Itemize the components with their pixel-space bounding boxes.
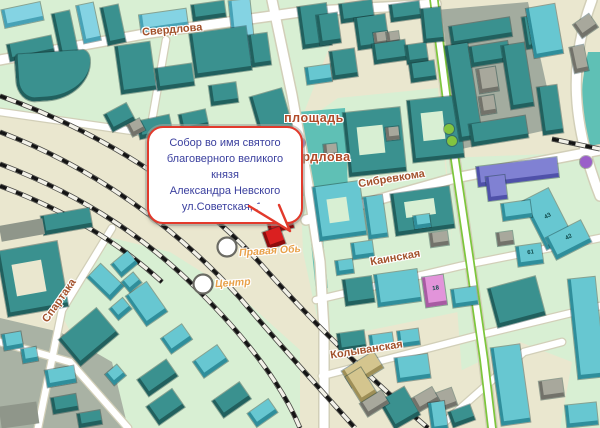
tree-dot-green xyxy=(447,136,457,146)
building xyxy=(21,347,38,363)
building xyxy=(209,82,239,106)
poi-dot-purple[interactable] xyxy=(580,156,592,168)
building: 18 xyxy=(422,275,447,308)
building xyxy=(479,95,497,115)
building xyxy=(326,197,349,224)
building xyxy=(374,269,421,307)
station-label-centr: Центр xyxy=(215,276,251,290)
callout-line: ул.Советская, 1а xyxy=(154,199,296,215)
building xyxy=(11,260,46,297)
station-circle-centr[interactable] xyxy=(194,275,213,294)
callout-line: благоверного великого князя xyxy=(154,151,296,183)
building-number: 61 xyxy=(519,243,543,262)
building xyxy=(357,125,386,156)
building xyxy=(429,231,449,247)
building xyxy=(565,402,598,427)
building xyxy=(394,354,430,382)
building xyxy=(486,175,508,201)
building xyxy=(496,231,514,246)
building: 61 xyxy=(516,243,544,266)
building xyxy=(476,67,499,94)
building xyxy=(316,13,341,46)
tree-dot-green xyxy=(444,124,454,134)
station-circle-pravaya-ob[interactable] xyxy=(218,238,237,257)
building xyxy=(413,214,431,229)
building-number: 18 xyxy=(425,275,446,303)
building xyxy=(329,48,358,79)
building xyxy=(385,126,399,140)
building xyxy=(420,7,443,43)
callout-line: Собор во имя святого xyxy=(154,135,296,151)
building xyxy=(335,259,354,275)
building xyxy=(0,401,39,428)
map-canvas[interactable]: 18434261 Свердлова площадь Свердлова Сиб… xyxy=(0,0,600,428)
building xyxy=(409,60,436,82)
building xyxy=(342,276,374,306)
map-callout-balloon[interactable]: Собор во имя святого благоверного велико… xyxy=(147,126,303,224)
building xyxy=(2,331,23,350)
callout-line: Александра Невского xyxy=(154,183,296,199)
building xyxy=(305,64,332,84)
square-label-line1: площадь xyxy=(270,112,358,125)
building xyxy=(539,378,564,399)
building xyxy=(189,26,252,78)
building xyxy=(421,111,446,141)
building xyxy=(451,286,478,307)
building xyxy=(115,42,156,94)
